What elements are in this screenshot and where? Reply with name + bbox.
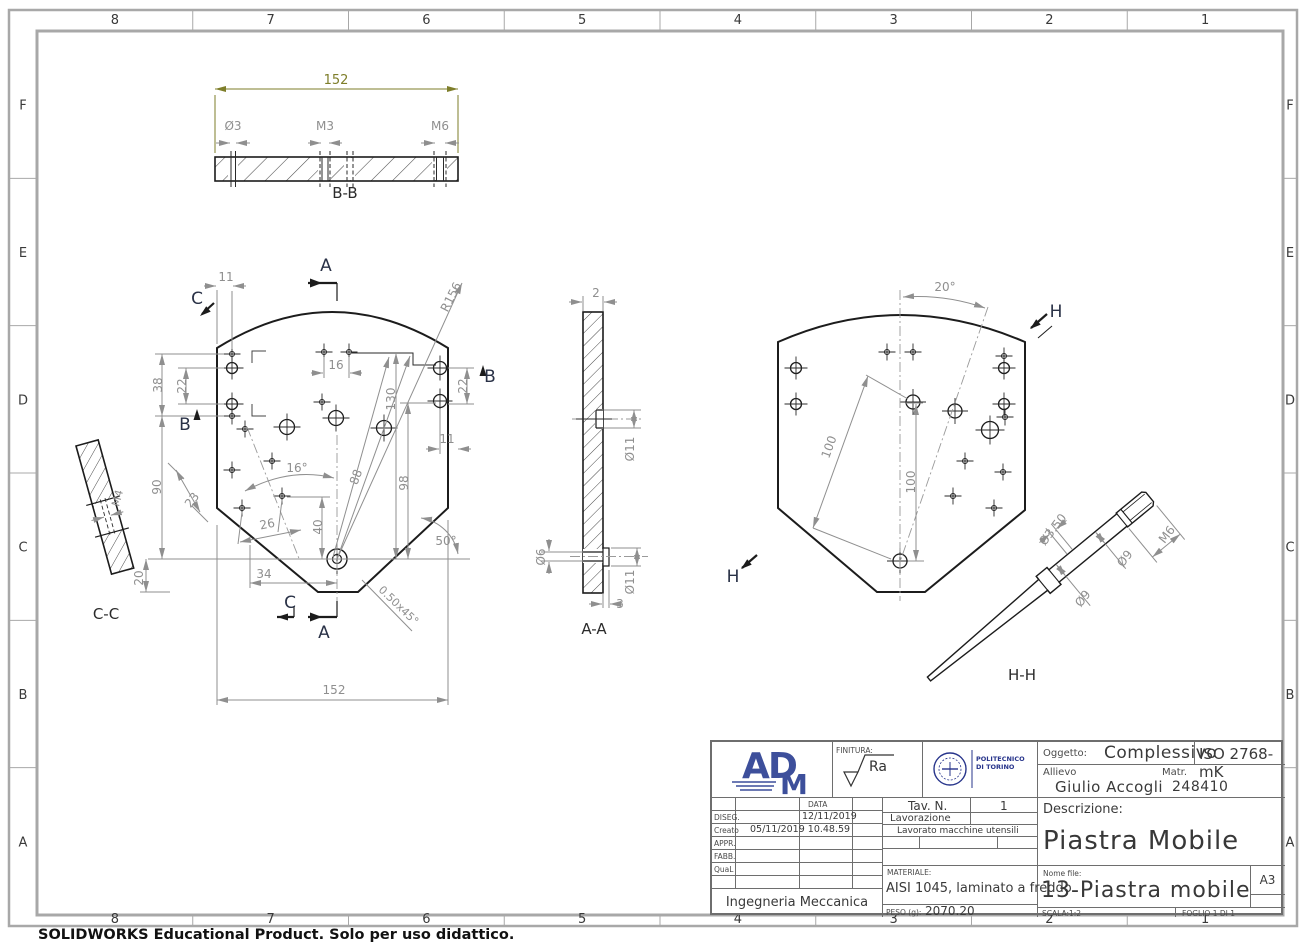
peso-value: 2070.20 bbox=[925, 904, 975, 918]
dim-16deg: 16° bbox=[286, 461, 307, 475]
grid-row-label-left: E bbox=[19, 246, 27, 261]
marker-h-top: H bbox=[1050, 302, 1063, 322]
marker-a-top: A bbox=[320, 256, 332, 276]
finitura-value: Ra bbox=[869, 759, 887, 775]
dim-r156: R156 bbox=[438, 280, 465, 314]
lavorazione-value: Lavorato macchine utensili bbox=[897, 826, 1019, 836]
section-view-hh: Ø3.50 Ø9 Ø9 M6 H-H bbox=[902, 465, 1184, 722]
tolerance-standard: ISO 2768-mK bbox=[1199, 745, 1281, 781]
section-cc-label: C-C bbox=[93, 605, 119, 623]
finitura-cell: FINITURA: Ra bbox=[832, 742, 922, 797]
dim-16: 16 bbox=[328, 358, 343, 372]
grid-row-label-right: C bbox=[1285, 541, 1294, 556]
approval-row-value: 12/11/2019 bbox=[802, 811, 857, 822]
front-view: A A C C B B 11 38 22 16 130 22 11 R156 9… bbox=[132, 256, 496, 705]
drawing-sheet: 8877665544332211FFEEDDCCBBAA 152 bbox=[0, 0, 1308, 947]
dim-d6: Ø6 bbox=[534, 548, 548, 565]
dim-m4: M4 bbox=[109, 488, 126, 507]
grid-col-label-top: 5 bbox=[578, 13, 586, 28]
politecnico-name: POLITECNICO DI TORINO bbox=[976, 756, 1025, 771]
grid-row-label-right: E bbox=[1286, 246, 1294, 261]
approval-row-label: APPR. bbox=[714, 839, 736, 848]
approval-row-label: FABB. bbox=[714, 852, 735, 861]
grid-col-label-top: 7 bbox=[266, 13, 274, 28]
marker-b-left: B bbox=[179, 415, 191, 435]
dim-100-vert: 100 bbox=[904, 471, 918, 494]
approval-row-label: QuaL bbox=[714, 865, 733, 874]
section-view-cc: M4 C-C bbox=[70, 438, 139, 623]
grid-col-label-bottom: 7 bbox=[266, 912, 274, 927]
grid-col-label-bottom: 8 bbox=[111, 912, 119, 927]
dim-88: 88 bbox=[347, 467, 365, 486]
dim-152-bottom: 152 bbox=[323, 683, 346, 697]
approval-row-label: DISEG. bbox=[714, 813, 740, 822]
grid-row-label-left: F bbox=[19, 99, 26, 114]
grid-row-label-left: C bbox=[18, 541, 27, 556]
dim-100-slant: 100 bbox=[819, 434, 840, 460]
materiale-label: MATERIALE: bbox=[887, 868, 931, 877]
lavorazione-label: Lavorazione bbox=[890, 813, 951, 824]
grid-row-label-right: F bbox=[1286, 99, 1293, 114]
grid-row-label-right: D bbox=[1285, 393, 1295, 408]
dim-34: 34 bbox=[256, 567, 271, 581]
title-block: A D M FINITURA: Ra POLITECNICO bbox=[710, 740, 1283, 915]
grid-row-label-right: B bbox=[1286, 688, 1295, 703]
dim-130: 130 bbox=[384, 388, 398, 411]
section-view-aa: 2 Ø11 Ø6 Ø11 3 A-A bbox=[534, 286, 648, 638]
allievo-label: Allievo bbox=[1043, 767, 1076, 778]
politecnico-cell: POLITECNICO DI TORINO bbox=[922, 742, 1037, 797]
dim-d9-lower: Ø9 bbox=[1072, 587, 1094, 609]
grid-col-label-top: 2 bbox=[1045, 13, 1053, 28]
marker-h-bottom: H bbox=[727, 567, 740, 587]
logo-letter-a: A bbox=[742, 746, 770, 787]
section-aa-label: A-A bbox=[581, 620, 607, 638]
dim-m3: M3 bbox=[316, 119, 334, 133]
section-view-bb: 152 Ø3 M3 M6 B-B bbox=[215, 73, 459, 202]
grid-col-label-bottom: 5 bbox=[578, 912, 586, 927]
data-header: DATA bbox=[808, 800, 827, 809]
dim-22-right: 22 bbox=[456, 378, 470, 393]
dim-40: 40 bbox=[311, 519, 325, 534]
allievo-value: Giulio Accogli bbox=[1055, 778, 1163, 796]
dim-50deg: 50° bbox=[435, 534, 456, 548]
dim-2: 2 bbox=[592, 286, 600, 300]
dim-d9-upper: Ø9 bbox=[1114, 547, 1136, 569]
marker-c-bottom: C bbox=[284, 593, 296, 613]
marker-a-bottom: A bbox=[318, 623, 330, 643]
dim-152-top: 152 bbox=[324, 73, 349, 88]
dim-22-left: 22 bbox=[175, 378, 189, 393]
dim-20deg: 20° bbox=[934, 280, 955, 294]
scala: SCALA:1:2 bbox=[1042, 909, 1081, 918]
grid-col-label-top: 1 bbox=[1201, 13, 1209, 28]
dim-23: 23 bbox=[182, 490, 202, 511]
dim-90: 90 bbox=[150, 479, 164, 494]
section-hh-label: H-H bbox=[1008, 666, 1036, 684]
grid-col-label-top: 6 bbox=[422, 13, 430, 28]
grid-col-label-top: 8 bbox=[111, 13, 119, 28]
grid-row-label-right: A bbox=[1286, 835, 1295, 850]
foglio: FOGLIO 1 DI 1 bbox=[1182, 909, 1235, 918]
marker-c-top: C bbox=[191, 289, 203, 309]
dim-d11-bot: Ø11 bbox=[623, 570, 637, 595]
section-bb-label: B-B bbox=[332, 184, 357, 202]
oggetto-label: Oggetto: bbox=[1043, 748, 1087, 759]
nome-file-value: 13-Piastra mobile bbox=[1041, 878, 1251, 903]
grid-col-label-top: 4 bbox=[734, 13, 742, 28]
approval-row-value: 05/11/2019 10.48.59 bbox=[750, 824, 850, 835]
solidworks-note: SOLIDWORKS Educational Product. Solo per… bbox=[38, 927, 514, 943]
logo-letter-m: M bbox=[780, 768, 808, 797]
peso-label: PESO (g): bbox=[886, 908, 921, 917]
back-view: 20° 100 100 H H bbox=[727, 280, 1063, 601]
dim-11-top: 11 bbox=[218, 270, 233, 284]
dim-d3: Ø3 bbox=[224, 119, 241, 133]
finitura-label: FINITURA: bbox=[836, 746, 873, 755]
grid-col-label-bottom: 6 bbox=[422, 912, 430, 927]
marker-b-right: B bbox=[484, 367, 496, 387]
dim-98: 98 bbox=[397, 475, 411, 490]
tav-value: 1 bbox=[1000, 799, 1008, 813]
sheet-format: A3 bbox=[1250, 865, 1285, 894]
matricola-label: Matr. bbox=[1162, 767, 1187, 778]
dim-26: 26 bbox=[258, 516, 276, 533]
grid-row-label-left: D bbox=[18, 393, 28, 408]
dim-m6: M6 bbox=[431, 119, 449, 133]
adm-logo: A D M bbox=[712, 742, 832, 797]
dim-chamfer: 0.50x45° bbox=[376, 583, 421, 627]
tav-label: Tav. N. bbox=[908, 799, 947, 813]
grid-row-label-left: B bbox=[19, 688, 28, 703]
grid-col-label-top: 3 bbox=[889, 13, 897, 28]
dim-20: 20 bbox=[132, 570, 146, 585]
dim-d11-mid: Ø11 bbox=[623, 437, 637, 462]
dim-38: 38 bbox=[151, 377, 165, 392]
dim-11-right: 11 bbox=[439, 432, 454, 446]
politecnico-seal-icon bbox=[934, 753, 966, 785]
grid-row-label-left: A bbox=[19, 835, 28, 850]
nome-file-label: Nome file: bbox=[1043, 869, 1081, 878]
matricola-value: 248410 bbox=[1172, 779, 1228, 795]
department-name: Ingegneria Meccanica bbox=[712, 888, 882, 917]
approval-row-label: Creato bbox=[714, 826, 739, 835]
politecnico-line2: DI TORINO bbox=[976, 764, 1025, 772]
descrizione-value: Piastra Mobile bbox=[1043, 826, 1239, 856]
dim-d350: Ø3.50 bbox=[1036, 511, 1069, 548]
dim-3: 3 bbox=[616, 597, 624, 611]
descrizione-label: Descrizione: bbox=[1043, 802, 1123, 817]
